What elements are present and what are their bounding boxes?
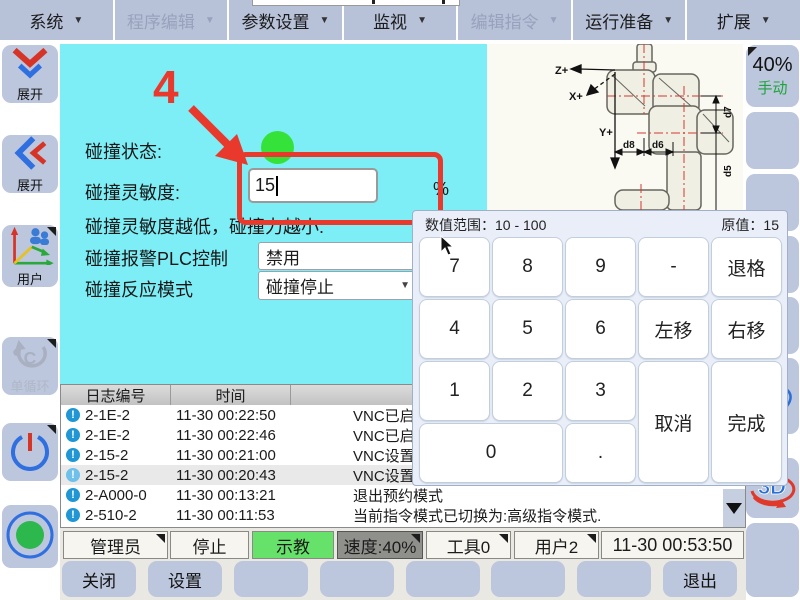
info-icon: ! (66, 468, 80, 482)
bottom-button-label: 关闭 (82, 567, 116, 592)
key-move-right[interactable]: 右移 (711, 299, 782, 359)
log-time: 11-30 00:11:53 (176, 507, 275, 524)
key-dot[interactable]: . (565, 423, 636, 483)
servo-ready-button[interactable] (2, 505, 58, 568)
key-6[interactable]: 6 (565, 299, 636, 359)
log-code: 2-510-2 (85, 507, 137, 524)
user-coordinate-button[interactable]: 用户 (2, 225, 58, 287)
menu-item-extension[interactable]: 扩展 ▼ (687, 0, 800, 40)
key-label: 9 (595, 256, 606, 278)
sidebar-button-label: 用户 (17, 269, 43, 288)
servo-ready-icon (5, 510, 55, 563)
axis-z-label: Z+ (555, 65, 568, 77)
plc-control-dropdown[interactable]: 禁用 (258, 242, 433, 270)
chevron-down-icon: ▼ (319, 15, 329, 26)
menu-item-edit-instruction: 编辑指令 ▼ (458, 0, 573, 40)
dim-d6-label: d6 (652, 140, 664, 151)
log-code: 2-15-2 (85, 447, 128, 464)
key-label: 5 (522, 318, 533, 340)
key-move-left[interactable]: 左移 (638, 299, 709, 359)
value-range-label: 数值范围：10 - 100 (425, 215, 546, 235)
key-label: 4 (449, 318, 460, 340)
menu-item-label: 编辑指令 (471, 8, 539, 33)
key-backspace[interactable]: 退格 (711, 237, 782, 297)
bottom-button-empty[interactable] (491, 561, 565, 597)
key-label: 1 (449, 380, 460, 402)
numeric-keypad-popup: 数值范围：10 - 100 原值：15 7 8 9 - 退格 4 5 6 左移 … (412, 210, 788, 486)
log-header-number: 日志编号 (61, 385, 171, 405)
key-minus[interactable]: - (638, 237, 709, 297)
key-2[interactable]: 2 (492, 361, 563, 421)
speed-percent-label: 40% (752, 54, 792, 77)
log-time: 11-30 00:20:43 (176, 467, 276, 484)
menu-item-run-prepare[interactable]: 运行准备 ▼ (573, 0, 688, 40)
info-icon: ! (66, 448, 80, 462)
collision-sensitivity-label: 碰撞灵敏度: (85, 179, 180, 205)
info-icon: ! (66, 508, 80, 522)
corner-mark-icon (47, 227, 56, 236)
menu-item-program-edit: 程序编辑 ▼ (115, 0, 230, 40)
teach-mode-box[interactable]: 示教 (252, 531, 334, 559)
corner-mark-icon (47, 339, 56, 348)
key-label: 8 (522, 256, 533, 278)
user-status-label: 用户2 (535, 533, 578, 558)
axis-x-label: X+ (569, 91, 583, 103)
menu-item-label: 程序编辑 (127, 8, 195, 33)
run-state-label: 停止 (193, 533, 227, 558)
menu-item-label: 参数设置 (241, 8, 309, 33)
scroll-down-icon (726, 503, 742, 514)
key-label: 取消 (654, 409, 692, 436)
sidebar-button-label: 展开 (17, 175, 43, 194)
chevron-down-icon: ▼ (73, 15, 83, 26)
key-label: 3 (595, 380, 606, 402)
menu-item-label: 系统 (29, 8, 63, 33)
right-column-button-empty[interactable] (746, 523, 799, 597)
corner-mark-icon (47, 425, 56, 434)
info-icon: ! (66, 428, 80, 442)
log-message: 退出预约模式 (353, 485, 443, 506)
speed-mode-button[interactable]: 40% 手动 (746, 45, 799, 107)
key-label: 完成 (727, 409, 765, 436)
log-time: 11-30 00:13:21 (176, 487, 276, 504)
chevron-down-icon: ▼ (205, 15, 215, 26)
tick-mark (442, 0, 445, 4)
key-label: 左移 (654, 316, 692, 343)
manual-mode-label: 手动 (757, 77, 787, 98)
key-label: 6 (595, 318, 606, 340)
corner-mark-icon (156, 534, 165, 543)
log-code: 2-1E-2 (85, 427, 130, 444)
role-status-box[interactable]: 管理员 (63, 531, 168, 559)
tick-mark (372, 0, 375, 4)
chevrons-left-icon (6, 135, 54, 174)
clock-label: 11-30 00:53:50 (613, 535, 733, 556)
key-cancel[interactable]: 取消 (638, 361, 709, 483)
offscreen-window-edge (252, 0, 460, 6)
bottom-button-label: 设置 (168, 567, 202, 592)
log-row[interactable]: ! 2-510-2 11-30 00:11:53 当前指令模式已切换为:高级指令… (61, 505, 745, 525)
annotation-step-number: 4 (153, 60, 179, 114)
teach-mode-label: 示教 (276, 533, 310, 558)
teach-pendant-screen: 系统 ▼ 程序编辑 ▼ 参数设置 ▼ 监视 ▼ 编辑指令 ▼ 运行准备 ▼ 扩展… (0, 0, 800, 600)
dim-d8-label: d8 (623, 140, 635, 151)
key-confirm[interactable]: 完成 (711, 361, 782, 483)
key-label: 退格 (727, 254, 765, 281)
chevron-down-icon: ▼ (549, 15, 559, 26)
menu-bar: 系统 ▼ 程序编辑 ▼ 参数设置 ▼ 监视 ▼ 编辑指令 ▼ 运行准备 ▼ 扩展… (0, 0, 800, 40)
chevron-down-icon: ▼ (663, 15, 673, 26)
expand-down-button[interactable]: 展开 (2, 45, 58, 103)
tool-status-label: 工具0 (447, 533, 490, 558)
svg-text:C: C (24, 347, 37, 367)
log-header-time: 时间 (171, 385, 291, 405)
corner-mark-icon (587, 534, 596, 543)
dim-d5-label: d5 (723, 165, 734, 177)
log-time: 11-30 00:22:50 (176, 407, 276, 424)
menu-item-label: 运行准备 (585, 8, 653, 33)
menu-item-monitor[interactable]: 监视 ▼ (344, 0, 459, 40)
run-state-box[interactable]: 停止 (170, 531, 249, 559)
key-5[interactable]: 5 (492, 299, 563, 359)
key-4[interactable]: 4 (419, 299, 490, 359)
key-label: 0 (486, 442, 497, 464)
clock-display: 11-30 00:53:50 (601, 531, 744, 559)
key-1[interactable]: 1 (419, 361, 490, 421)
expand-left-button[interactable]: 展开 (2, 135, 58, 193)
log-code: 2-1E-2 (85, 407, 130, 424)
exit-button[interactable]: 退出 (663, 561, 737, 597)
speed-status-label: 速度:40% (344, 533, 417, 558)
menu-item-parameter-settings[interactable]: 参数设置 ▼ (229, 0, 344, 40)
robot-arm-diagram: Z+ X+ Y+ d8 d6 d7 d5 (487, 44, 743, 210)
single-cycle-button: C 单循环 (2, 337, 58, 395)
menu-item-label: 扩展 (717, 8, 751, 33)
chevron-down-icon: ▼ (417, 15, 427, 26)
log-time: 11-30 00:21:00 (176, 447, 276, 464)
plc-control-label: 碰撞报警PLC控制 (85, 245, 228, 271)
plc-control-value: 禁用 (266, 244, 300, 269)
key-label: 2 (522, 380, 533, 402)
speed-status-box[interactable]: 速度:40% (337, 531, 423, 559)
power-button[interactable] (2, 423, 58, 481)
settings-button[interactable]: 设置 (148, 561, 222, 597)
key-9[interactable]: 9 (565, 237, 636, 297)
key-label: . (598, 442, 603, 464)
bottom-button-empty[interactable] (320, 561, 394, 597)
bottom-button-empty[interactable] (406, 561, 480, 597)
key-8[interactable]: 8 (492, 237, 563, 297)
sidebar-button-label: 展开 (17, 84, 43, 103)
robot-diagram-panel: Z+ X+ Y+ d8 d6 d7 d5 (487, 44, 743, 210)
chevron-down-icon: ▼ (400, 280, 410, 291)
key-0[interactable]: 0 (419, 423, 563, 483)
collision-status-label: 碰撞状态: (85, 138, 162, 164)
info-icon: ! (66, 408, 80, 422)
dim-d7-label: d7 (723, 106, 734, 118)
bottom-button-label: 退出 (683, 567, 717, 592)
menu-item-label: 监视 (373, 8, 407, 33)
close-button[interactable]: 关闭 (62, 561, 136, 597)
chevron-down-icon: ▼ (761, 15, 771, 26)
corner-mark-icon (499, 534, 508, 543)
tool-status-box[interactable]: 工具0 (426, 531, 511, 559)
mouse-cursor (440, 235, 458, 257)
power-icon (8, 429, 52, 476)
reaction-mode-dropdown[interactable]: 碰撞停止 ▼ (258, 271, 419, 300)
log-time: 11-30 00:22:46 (176, 427, 276, 444)
single-cycle-icon: C (8, 338, 52, 375)
log-code: 2-15-2 (85, 467, 128, 484)
key-label: 7 (449, 256, 460, 278)
corner-mark-icon (411, 534, 420, 543)
chevrons-down-icon (6, 46, 54, 83)
corner-mark-icon (748, 47, 757, 56)
original-value-label: 原值：15 (721, 215, 779, 235)
right-column-button-empty[interactable] (746, 112, 799, 169)
info-icon: ! (66, 488, 80, 502)
log-scroll-down-button[interactable] (723, 489, 745, 527)
axis-y-label: Y+ (599, 127, 613, 139)
user-status-box[interactable]: 用户2 (514, 531, 599, 559)
bottom-button-empty[interactable] (234, 561, 308, 597)
log-row[interactable]: ! 2-A000-0 11-30 00:13:21 退出预约模式 (61, 485, 745, 505)
log-code: 2-A000-0 (85, 487, 147, 504)
sidebar-button-label: 单循环 (10, 376, 49, 395)
annotation-arrow (183, 100, 258, 175)
role-label: 管理员 (90, 533, 141, 558)
key-label: - (670, 256, 676, 278)
menu-item-system[interactable]: 系统 ▼ (0, 0, 115, 40)
reaction-mode-value: 碰撞停止 (266, 273, 334, 298)
key-3[interactable]: 3 (565, 361, 636, 421)
reaction-mode-label: 碰撞反应模式 (85, 276, 193, 302)
bottom-button-empty[interactable] (577, 561, 651, 597)
key-label: 右移 (727, 316, 765, 343)
log-message: 当前指令模式已切换为:高级指令模式. (353, 505, 601, 526)
